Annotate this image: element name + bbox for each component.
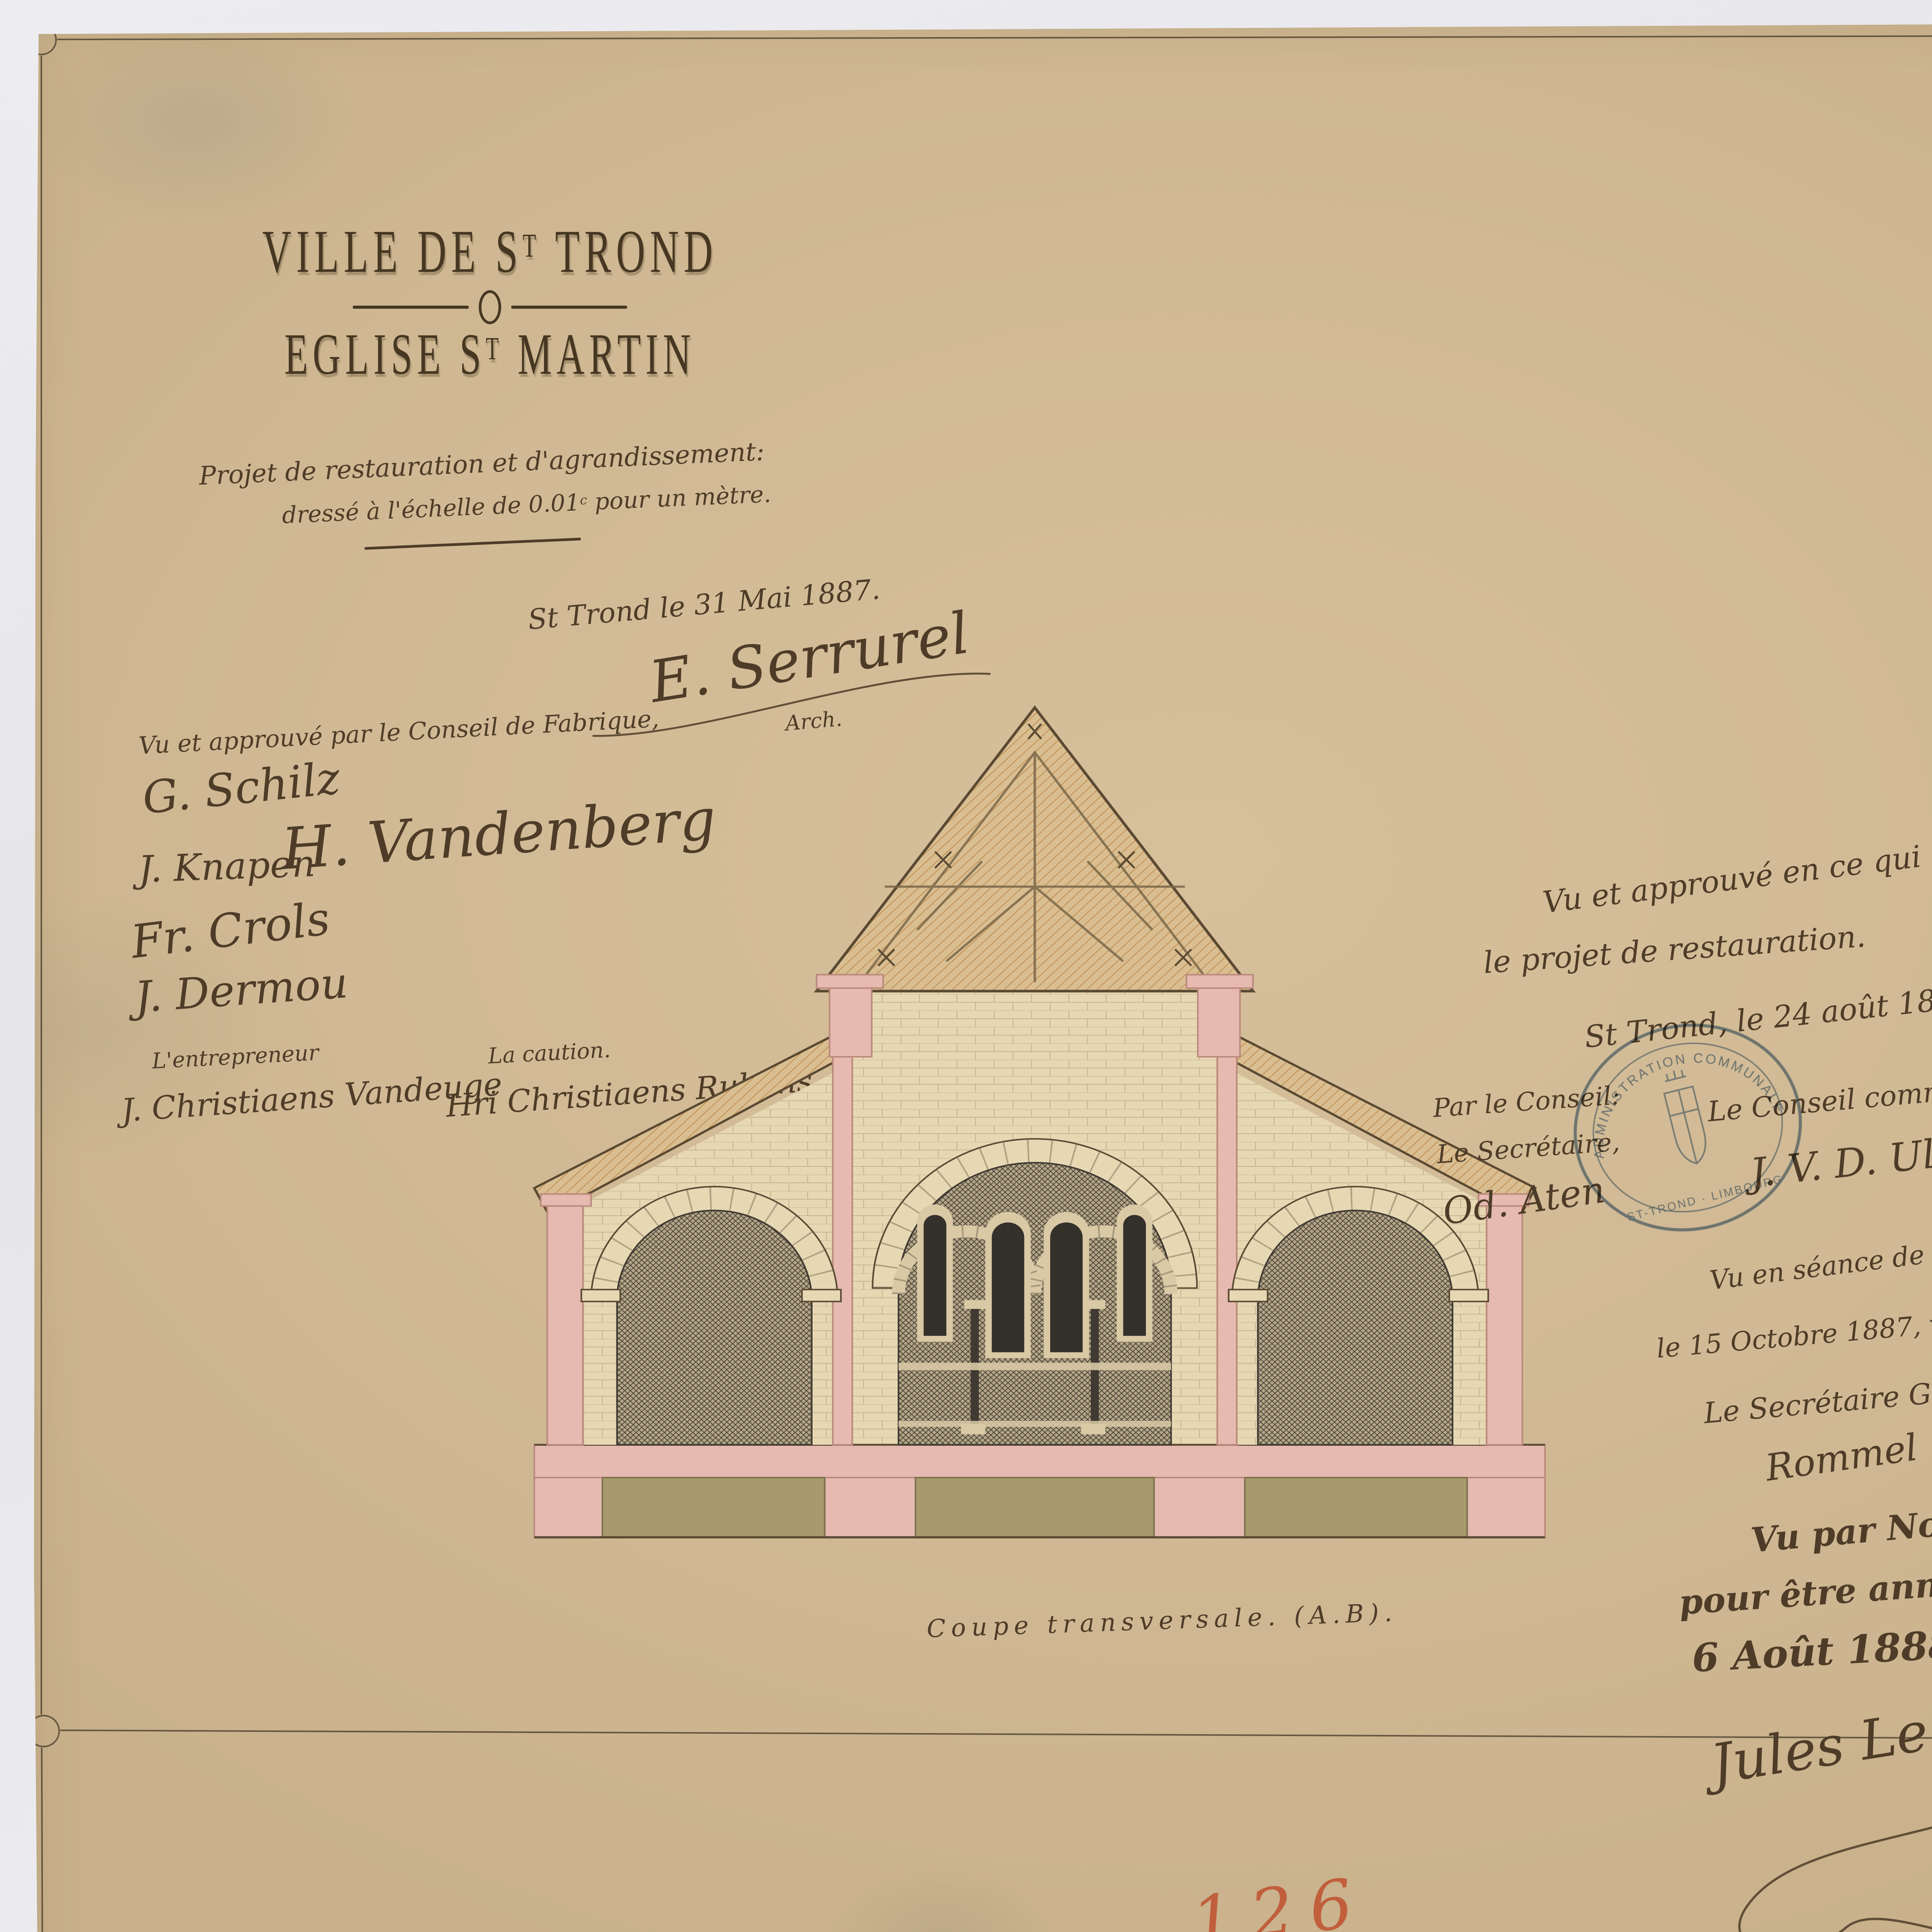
fabrique-signature: G. Schilz bbox=[140, 752, 342, 825]
title-line-1: Ville de St Trond bbox=[216, 231, 764, 277]
scan-background: Ville de St Trond Eglise St Martin Proje… bbox=[0, 0, 1932, 1932]
central-arch bbox=[872, 1139, 1197, 1445]
title-block: Ville de St Trond Eglise St Martin bbox=[216, 231, 764, 379]
gable-roof bbox=[816, 707, 1253, 991]
title-line-2: Eglise St Martin bbox=[216, 334, 764, 379]
ornament-bar-right bbox=[511, 306, 627, 309]
paper-sheet: Ville de St Trond Eglise St Martin Proje… bbox=[34, 22, 1932, 1932]
ministry-block: Vu par Nous, Ministre de la justice, pou… bbox=[1638, 1479, 1932, 1932]
registration-mark bbox=[34, 1716, 59, 1747]
ministry-line-3: 6 Août 1888, N° 17127. bbox=[1691, 1609, 1932, 1681]
title-superscript: t bbox=[522, 228, 541, 265]
communal-line-2: le projet de restauration. bbox=[1482, 919, 1867, 981]
title-church-text: Eglise S bbox=[284, 321, 486, 387]
secretary-general-label: Le Secrétaire Général, bbox=[1702, 1368, 1932, 1430]
title-church-text-2: Martin bbox=[503, 321, 696, 387]
registration-mark bbox=[34, 25, 56, 54]
commission-block: Vu en séance de la Commission Royale des… bbox=[1626, 1205, 1932, 1514]
scanned-archival-document: { "document_type": "Architectural drawin… bbox=[0, 0, 1932, 1932]
ornament-bar-left bbox=[353, 306, 469, 309]
stamp-coat-of-arms bbox=[1659, 1067, 1711, 1167]
title-city-text: Ville de S bbox=[262, 218, 523, 286]
entrepreneur-label: L'entrepreneur bbox=[151, 1040, 320, 1074]
minister-signature-flourish bbox=[1638, 1746, 1932, 1932]
foundation bbox=[534, 1445, 1545, 1537]
fabrique-signature: J. Knapen bbox=[138, 842, 316, 891]
title-city-text-2: Trond bbox=[541, 218, 718, 286]
ornament-oval bbox=[479, 290, 501, 324]
fabrique-signature: Fr. Crols bbox=[128, 891, 333, 969]
project-line-2: dressé à l'échelle de 0.01c pour un mètr… bbox=[281, 478, 827, 529]
title-ornament bbox=[216, 290, 764, 324]
fabrique-signature: J. Dermou bbox=[133, 958, 349, 1022]
title-superscript-2: t bbox=[486, 330, 503, 366]
